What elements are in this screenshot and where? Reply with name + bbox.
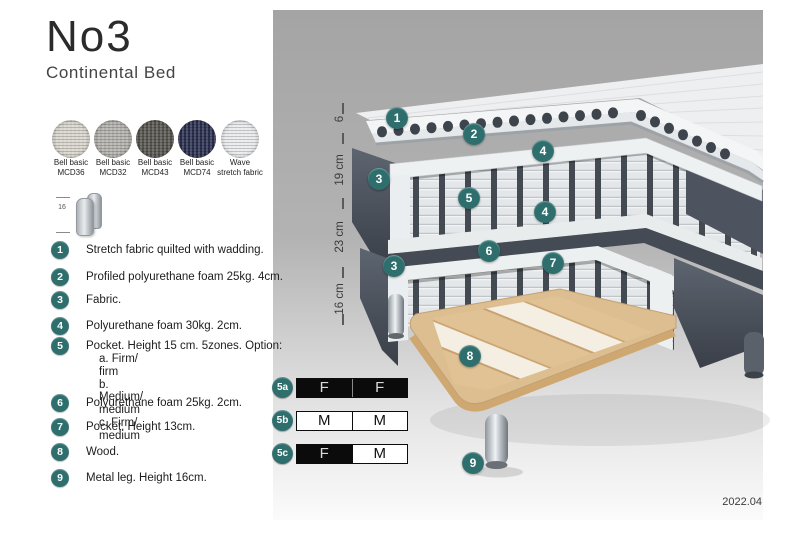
diagram-callout-3: 3 [368, 168, 390, 190]
diagram-callout-5: 5 [458, 187, 480, 209]
firmness-label-5b: 5b [272, 410, 293, 431]
diagram-callout-9: 9 [462, 452, 484, 474]
diagram-callout-8: 8 [459, 345, 481, 367]
diagram-callout-7: 7 [542, 252, 564, 274]
product-sheet: No3 Continental Bed Bell basicMCD36 Bell… [0, 0, 800, 533]
firmness-label-5c: 5c [272, 443, 293, 464]
diagram-callout-1: 1 [386, 107, 408, 129]
diagram-callout-4: 4 [532, 140, 554, 162]
diagram-callout-4: 4 [534, 201, 556, 223]
firmness-label-5a: 5a [272, 377, 293, 398]
diagram-callout-3: 3 [383, 255, 405, 277]
callout-layer: 12435467389 [0, 0, 800, 533]
diagram-callout-2: 2 [463, 123, 485, 145]
diagram-callout-6: 6 [478, 240, 500, 262]
